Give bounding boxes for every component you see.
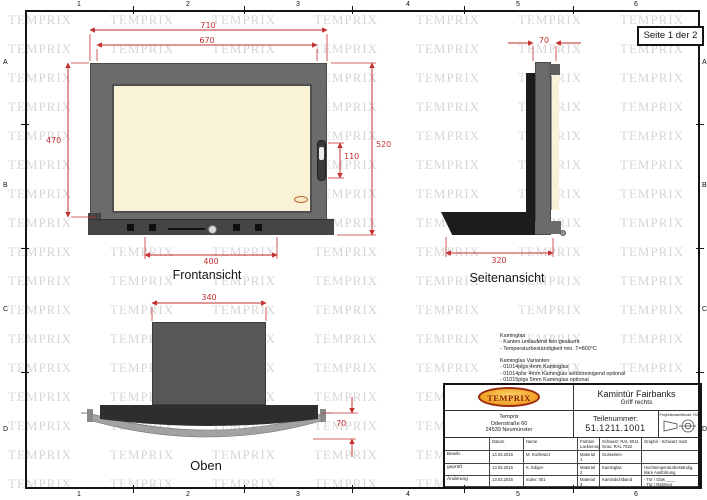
watermark-text: TEMPRIX [416,12,480,28]
drawing-sheet: TEMPRIXTEMPRIXTEMPRIXTEMPRIXTEMPRIXTEMPR… [0,0,707,500]
ruler-col-4-top: 4 [406,1,410,8]
tb-cell-r2-c4: Kaminglas [600,464,642,476]
tb-cell-r1-c5 [642,451,700,464]
watermark-text: TEMPRIX [110,418,174,434]
front-vent-4 [255,224,262,231]
watermark-text: TEMPRIX [8,273,72,289]
watermark-text: TEMPRIX [314,447,378,463]
watermark-text: TEMPRIX [518,244,582,260]
watermark-text: TEMPRIX [212,302,276,318]
tb-cell-r3-c1: 13.03.2016 [490,476,524,487]
watermark-text: TEMPRIX [518,41,582,57]
watermark-text: TEMPRIX [110,41,174,57]
ruler-tick [464,485,465,493]
ruler-row-A-right: A [702,59,707,66]
watermark-text: TEMPRIX [8,215,72,231]
ruler-col-3-top: 3 [296,1,300,8]
ruler-tick [244,6,245,14]
watermark-text: TEMPRIX [8,360,72,376]
watermark-text: TEMPRIX [620,215,684,231]
drawing-subtitle: Griff rechts [573,399,700,406]
ruler-col-4-bottom: 4 [406,491,410,498]
watermark-text: TEMPRIX [8,12,72,28]
air-slider-track [168,228,205,230]
watermark-text: TEMPRIX [620,302,684,318]
ruler-tick [696,124,704,125]
watermark-text: TEMPRIX [8,244,72,260]
tb-cell-r1-c4: Gusseisen [600,451,642,464]
dim-front-vent-width: 400 [203,257,218,266]
watermark-text: TEMPRIX [8,41,72,57]
watermark-text: TEMPRIX [518,302,582,318]
ruler-row-D-right: D [702,426,707,433]
dim-front-total-height: 520 [376,140,391,149]
ruler-tick [352,6,353,14]
ruler-tick [21,124,29,125]
watermark-text: TEMPRIX [620,186,684,202]
ruler-tick [696,372,704,373]
title-cell: Kamintür Fairbanks Griff rechts [573,385,700,410]
ruler-col-6-bottom: 6 [634,491,638,498]
tb-cell-r1-c1: 13.03.2016 [490,451,524,464]
ruler-row-B-left: B [3,182,8,189]
door-handle-slot [319,147,324,160]
watermark-text: TEMPRIX [314,273,378,289]
ruler-tick [21,248,29,249]
side-glass-strip [551,76,559,210]
tb-cell-r3-c4: Kamindichtband [600,476,642,487]
watermark-text: TEMPRIX [416,331,480,347]
temprix-logo: TEMPRIX [478,387,540,407]
projection-symbol-icon [662,418,698,434]
watermark-text: TEMPRIX [8,476,72,492]
part-number-label: Teilenummer: [573,411,658,423]
ruler-tick [21,372,29,373]
title-block: TEMPRIX Kamintür Fairbanks Griff rechts … [443,383,702,489]
watermark-text: TEMPRIX [8,418,72,434]
glass-brand-logo [294,196,308,203]
watermark-text: TEMPRIX [416,157,480,173]
dim-front-left-height: 470 [46,136,61,145]
tb-cell-r1-c3: Material 1 [578,451,600,464]
front-view-label: Frontansicht [173,268,242,282]
ruler-tick [464,6,465,14]
watermark-text: TEMPRIX [110,12,174,28]
ruler-tick [133,6,134,14]
dim-side-depth-bottom: 320 [491,256,506,265]
dim-front-handle-height: 110 [344,152,359,161]
company-address: Temprix Odenstraße 60 24539 Neumünster [445,411,573,434]
watermark-text: TEMPRIX [518,12,582,28]
tb-cell-r1-c2: M. Kozlewicz [524,451,578,464]
watermark-text: TEMPRIX [416,70,480,86]
watermark-text: TEMPRIX [314,302,378,318]
air-slider-knob [208,225,217,234]
watermark-text: TEMPRIX [416,360,480,376]
watermark-text: TEMPRIX [416,302,480,318]
watermark-text: TEMPRIX [8,389,72,405]
ruler-col-1-bottom: 1 [77,491,81,498]
watermark-text: TEMPRIX [620,99,684,115]
ruler-tick [133,485,134,493]
company-cell: Temprix Odenstraße 60 24539 Neumünster [445,411,573,437]
watermark-text: TEMPRIX [8,128,72,144]
side-door-profile [535,62,551,235]
ruler-row-C-right: C [702,306,707,313]
front-glass [112,84,312,213]
watermark-text: TEMPRIX [110,302,174,318]
front-vent-1 [127,224,134,231]
tb-cell-r0-c3: Farbton Lackierung [578,438,600,451]
watermark-text: TEMPRIX [314,389,378,405]
watermark-text: TEMPRIX [314,360,378,376]
ruler-col-2-bottom: 2 [186,491,190,498]
ruler-row-C-left: C [3,306,8,313]
side-view-label: Seitenansicht [469,271,544,285]
watermark-text: TEMPRIX [8,70,72,86]
side-hinge-knob [560,230,566,236]
dim-top-width: 340 [201,293,216,302]
front-vent-3 [233,224,240,231]
ruler-tick [696,248,704,249]
page-number-box: Seite 1 der 2 [637,26,704,46]
drawing-title: Kamintür Fairbanks [573,385,700,399]
ruler-col-2-top: 2 [186,1,190,8]
watermark-text: TEMPRIX [8,99,72,115]
tb-cell-r2-c0: geprüft [445,464,490,476]
watermark-text: TEMPRIX [110,447,174,463]
tb-cell-r2-c1: 13.03.2016 [490,464,524,476]
dim-front-glass-width: 670 [199,36,214,45]
watermark-text: TEMPRIX [212,244,276,260]
watermark-text: TEMPRIX [416,41,480,57]
tb-cell-r1-c0: Bearb. [445,451,490,464]
front-vent-2 [149,224,156,231]
watermark-text: TEMPRIX [110,244,174,260]
tb-cell-r0-c5: Graphit - Schwarz matt [642,438,700,451]
watermark-text: TEMPRIX [416,186,480,202]
logo-cell: TEMPRIX [445,385,573,410]
tb-cell-r2-c5: Hochtemperaturbeständig, klare Ausführun… [642,464,700,476]
ruler-row-B-right: B [702,182,707,189]
ruler-tick [573,6,574,14]
watermark-text: TEMPRIX [110,273,174,289]
side-foot [535,221,561,234]
watermark-text: TEMPRIX [620,157,684,173]
ruler-col-1-top: 1 [77,1,81,8]
tb-cell-r2-c3: Material 2 [578,464,600,476]
ruler-tick [244,485,245,493]
projection-method-label: Projektionsmethode: ISO [659,411,700,417]
watermark-text: TEMPRIX [314,476,378,492]
tb-cell-r3-c0: Änderung [445,476,490,487]
glass-notes: Kaminglas- Kanten umlaufend fein gesäumt… [500,333,675,383]
part-number: 51.1211.1001 [573,423,658,433]
watermark-text: TEMPRIX [416,244,480,260]
tb-cell-r0-c1: Datum [490,438,524,451]
tb-cell-r2-c2: K. Ediger [524,464,578,476]
watermark-text: TEMPRIX [416,128,480,144]
ruler-row-D-left: D [3,426,8,433]
projection-cell: Projektionsmethode: ISO [659,411,700,437]
watermark-text: TEMPRIX [620,273,684,289]
watermark-text: TEMPRIX [110,476,174,492]
dim-side-depth-top: 70 [539,36,549,45]
watermark-text: TEMPRIX [212,12,276,28]
tb-cell-r3-c5: - Tür / Glas ____ - Tür / Rahmen ____ [642,476,700,487]
watermark-text: TEMPRIX [212,41,276,57]
watermark-text: TEMPRIX [314,41,378,57]
top-body-rect [152,322,266,405]
tb-cell-r3-c3: Material 3 [578,476,600,487]
watermark-text: TEMPRIX [8,186,72,202]
part-number-cell: Teilenummer: 51.1211.1001 [573,411,658,437]
ruler-row-A-left: A [3,59,8,66]
ruler-tick [352,485,353,493]
dim-top-height: 70 [336,419,346,428]
tb-cell-r0-c4: Schwarz: RAL 9011 Grau: RAL 7022 [600,438,642,451]
watermark-text: TEMPRIX [8,157,72,173]
watermark-text: TEMPRIX [212,418,276,434]
ruler-col-5-bottom: 5 [516,491,520,498]
side-top-notch [549,64,560,75]
watermark-text: TEMPRIX [8,447,72,463]
watermark-text: TEMPRIX [314,244,378,260]
ruler-col-5-top: 5 [516,1,520,8]
watermark-text: TEMPRIX [620,70,684,86]
ruler-col-3-bottom: 3 [296,491,300,498]
ruler-tick [573,485,574,493]
watermark-text: TEMPRIX [620,128,684,144]
tb-cell-r0-c2: Name [524,438,578,451]
dim-front-outer-width: 710 [200,21,215,30]
watermark-text: TEMPRIX [416,99,480,115]
watermark-text: TEMPRIX [314,331,378,347]
watermark-text: TEMPRIX [620,244,684,260]
top-view-label: Oben [190,458,222,473]
watermark-text: TEMPRIX [8,331,72,347]
revision-material-table: DatumNameFarbton LackierungSchwarz: RAL … [445,438,700,487]
watermark-text: TEMPRIX [8,302,72,318]
watermark-text: TEMPRIX [314,12,378,28]
ruler-col-6-top: 6 [634,1,638,8]
tb-cell-r3-c2: Index: 001 [524,476,578,487]
tb-cell-r0-c0 [445,438,490,451]
